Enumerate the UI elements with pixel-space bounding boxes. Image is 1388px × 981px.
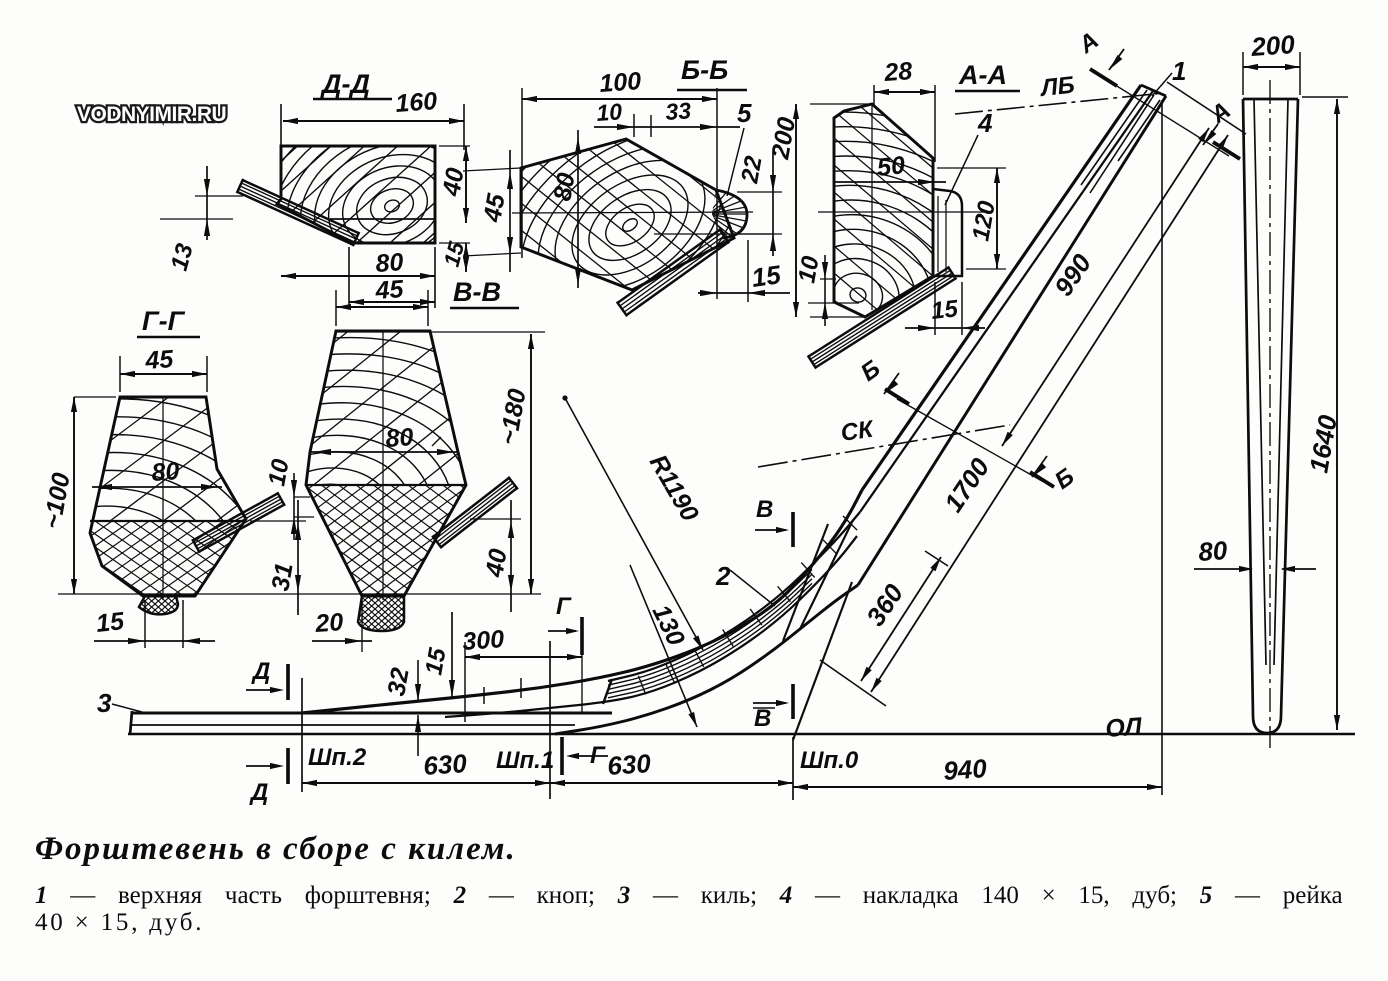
- svg-text:100: 100: [598, 67, 642, 98]
- svg-text:45: 45: [143, 345, 175, 375]
- svg-text:Шп.1: Шп.1: [496, 747, 554, 774]
- svg-text:80: 80: [548, 171, 580, 203]
- svg-text:45: 45: [478, 191, 511, 225]
- svg-text:2: 2: [715, 561, 731, 591]
- svg-text:31: 31: [266, 561, 298, 593]
- svg-text:Г: Г: [556, 593, 572, 620]
- svg-text:15: 15: [420, 645, 451, 677]
- svg-text:Шп.0: Шп.0: [800, 747, 859, 774]
- svg-text:1: 1: [1172, 56, 1186, 86]
- svg-text:ОЛ: ОЛ: [1104, 712, 1143, 743]
- svg-text:10: 10: [263, 456, 294, 488]
- svg-text:50: 50: [876, 151, 907, 182]
- svg-text:28: 28: [882, 57, 913, 87]
- svg-text:630: 630: [606, 748, 652, 781]
- svg-text:15: 15: [750, 259, 783, 293]
- svg-text:22: 22: [736, 153, 768, 186]
- svg-text:СК: СК: [839, 415, 877, 447]
- svg-text:160: 160: [394, 87, 438, 118]
- svg-text:Б-Б: Б-Б: [681, 55, 728, 85]
- svg-text:А-А: А-А: [958, 60, 1007, 90]
- svg-text:15: 15: [930, 295, 960, 325]
- svg-text:10: 10: [596, 98, 624, 126]
- svg-text:45: 45: [374, 275, 406, 305]
- svg-text:630: 630: [422, 748, 468, 781]
- svg-text:15: 15: [95, 607, 127, 638]
- svg-text:В: В: [754, 705, 771, 732]
- svg-text:32: 32: [382, 666, 414, 698]
- svg-text:ЛБ: ЛБ: [1038, 72, 1076, 103]
- svg-text:В-В: В-В: [453, 277, 501, 307]
- svg-text:80: 80: [1197, 535, 1228, 567]
- svg-text:Д-Д: Д-Д: [320, 69, 370, 99]
- svg-text:200: 200: [1249, 29, 1296, 62]
- svg-text:VODNYIMIR.RU: VODNYIMIR.RU: [77, 103, 226, 126]
- svg-text:40: 40: [480, 547, 513, 580]
- svg-text:Шп.2: Шп.2: [308, 744, 367, 771]
- svg-text:Форштевень в сборе с килем.: Форштевень в сборе с килем.: [35, 831, 517, 867]
- svg-text:3: 3: [97, 688, 112, 718]
- svg-text:Г-Г: Г-Г: [142, 306, 186, 336]
- svg-text:80: 80: [375, 248, 405, 278]
- svg-text:Д: Д: [249, 779, 268, 806]
- svg-text:80: 80: [385, 423, 415, 453]
- svg-text:80: 80: [151, 457, 181, 487]
- svg-text:5: 5: [737, 98, 752, 128]
- svg-text:33: 33: [665, 97, 693, 125]
- svg-text:1 — верхняя часть форштевня; 2: 1 — верхняя часть форштевня; 2 — кноп; 3…: [35, 882, 1343, 909]
- svg-text:В: В: [756, 496, 773, 523]
- svg-text:300: 300: [461, 625, 505, 656]
- svg-text:10: 10: [793, 253, 824, 285]
- svg-text:940: 940: [942, 753, 988, 786]
- svg-text:40 × 15, дуб.: 40 × 15, дуб.: [35, 909, 204, 936]
- svg-text:Д: Д: [251, 658, 270, 685]
- svg-text:20: 20: [313, 608, 344, 638]
- svg-text:4: 4: [977, 108, 993, 138]
